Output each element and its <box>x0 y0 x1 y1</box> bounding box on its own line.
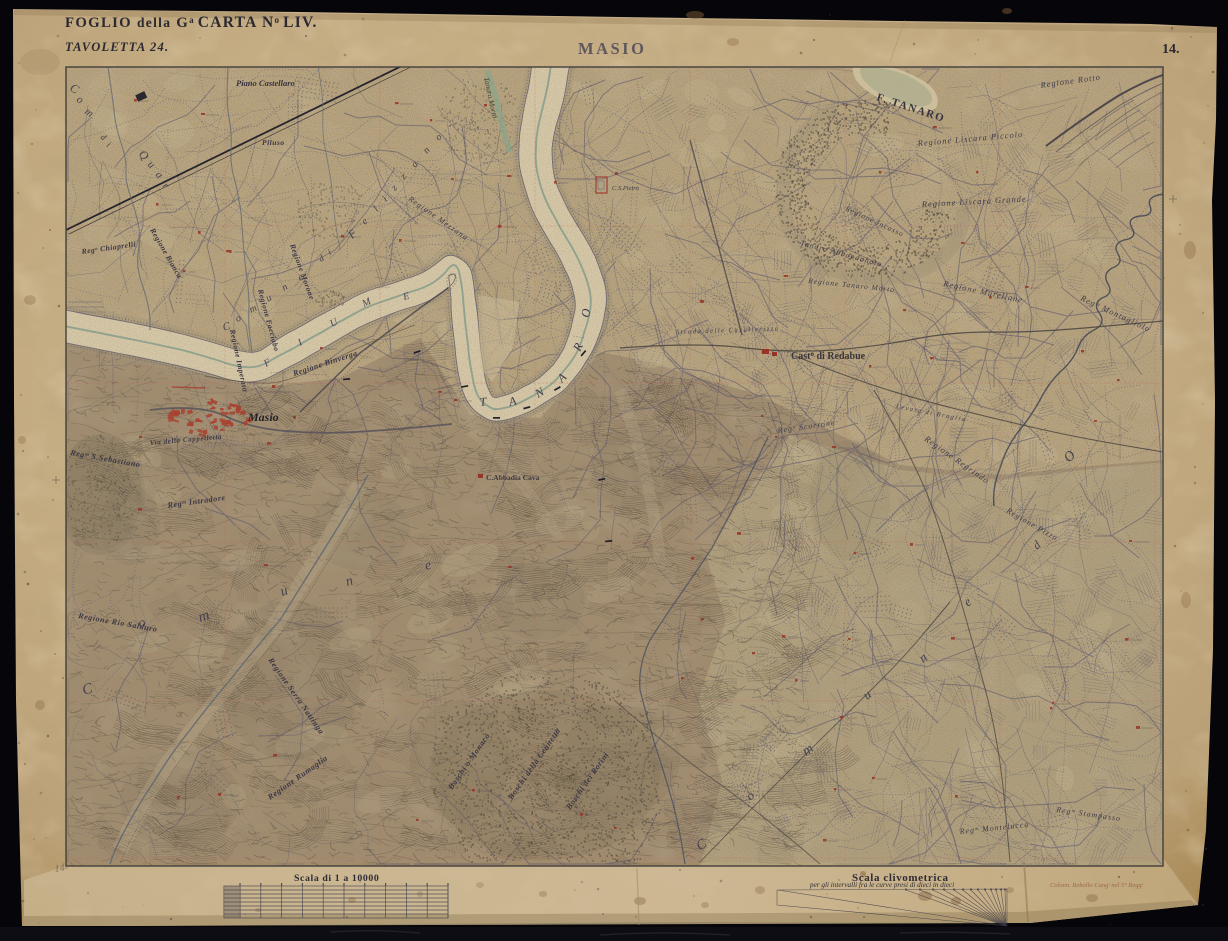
svg-text:TAVOLETTA 24.: TAVOLETTA 24. <box>65 40 169 54</box>
svg-text:Piluso: Piluso <box>262 138 285 147</box>
svg-text:Casto di Redabue: Casto di Redabue <box>791 350 866 362</box>
svg-text:C.S.Pietro: C.S.Pietro <box>612 185 640 192</box>
svg-text:C.Abbadia Cava: C.Abbadia Cava <box>486 473 540 482</box>
svg-text:Colonn. Rebollo Cangʳ nel 5° R: Colonn. Rebollo Cangʳ nel 5° Reggᵗ <box>1050 882 1144 889</box>
svg-text:Scala di 1 a 10000: Scala di 1 a 10000 <box>294 873 379 884</box>
svg-text:Masio: Masio <box>247 410 279 424</box>
svg-text:MASIO: MASIO <box>578 39 646 58</box>
svg-text:per gli intervalli fra le curv: per gli intervalli fra le curve presi di… <box>809 881 954 889</box>
svg-text:Piano Castellaro: Piano Castellaro <box>236 78 295 88</box>
svg-text:14.: 14. <box>1162 42 1180 57</box>
